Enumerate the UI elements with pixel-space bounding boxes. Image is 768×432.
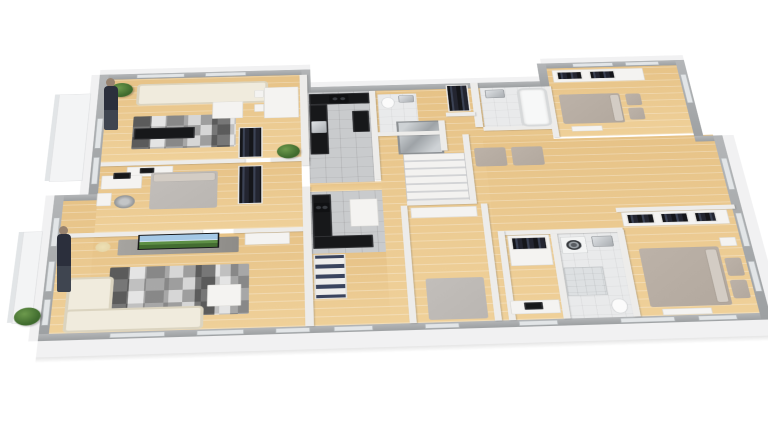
- armchair-1: [474, 147, 508, 166]
- sofa-living-topleft: [136, 81, 268, 106]
- closet-grayroom: [410, 206, 477, 218]
- floor-stairs: [403, 153, 470, 203]
- shoe-shelf: [314, 254, 348, 299]
- laptop-right: [524, 302, 544, 310]
- sofa-sectional-b: [62, 306, 203, 333]
- clothes-bedroombr-1: [626, 213, 656, 224]
- clothes-bedroombr-3: [693, 212, 718, 223]
- stove-kitchentop: [329, 94, 349, 103]
- dining-table: [264, 87, 299, 119]
- scene-stage: [0, 0, 768, 432]
- counter-kitchenbot-b: [313, 235, 374, 249]
- pouf-livingbl: [207, 284, 241, 307]
- sink-bathright: [591, 236, 614, 247]
- nightstand-bedroombr: [719, 237, 738, 246]
- imac-monitor: [113, 172, 131, 179]
- sofa-grayroom: [425, 277, 488, 320]
- bench-livingbl: [245, 232, 290, 245]
- bathtub: [516, 88, 553, 127]
- floor-elevator: [396, 120, 444, 154]
- shower: [563, 266, 608, 296]
- island-kitchenbot: [349, 199, 379, 227]
- drawer-office: [96, 193, 112, 206]
- tv-floor-unit: [133, 127, 195, 140]
- floor-plan-render: [0, 0, 768, 432]
- window-5: [425, 323, 460, 329]
- cushion-bedroomtr-1: [625, 93, 643, 105]
- washer: [560, 236, 588, 253]
- bookshelf-left-a: [238, 127, 262, 158]
- bench-bedroomtr: [571, 126, 603, 132]
- wardrobe-core: [446, 85, 471, 112]
- clothes-bedroomtr-2: [589, 70, 616, 79]
- chaise-living-topleft: [212, 101, 243, 119]
- sink-bathsmall: [398, 95, 414, 102]
- sink-kitchentop: [311, 121, 327, 133]
- dining-chair-1: [254, 90, 264, 98]
- bookshelf-left-b: [238, 165, 263, 204]
- dining-chair-2: [254, 104, 264, 112]
- tv-landscape: [137, 233, 219, 250]
- oven-tower: [352, 110, 370, 132]
- wall-wardrobecore-bottom: [446, 112, 476, 117]
- stove-kitchenbot: [314, 203, 331, 213]
- clothes-bedroombr-2: [659, 212, 689, 223]
- floor-plan: [0, 54, 768, 351]
- armchair-2: [511, 146, 545, 165]
- cushion-bedroomtr-2: [628, 107, 646, 119]
- closet-clothes: [510, 237, 548, 251]
- clothes-bedroomtr-1: [556, 71, 583, 80]
- window-3: [275, 327, 310, 333]
- sink-tubroom: [485, 90, 505, 99]
